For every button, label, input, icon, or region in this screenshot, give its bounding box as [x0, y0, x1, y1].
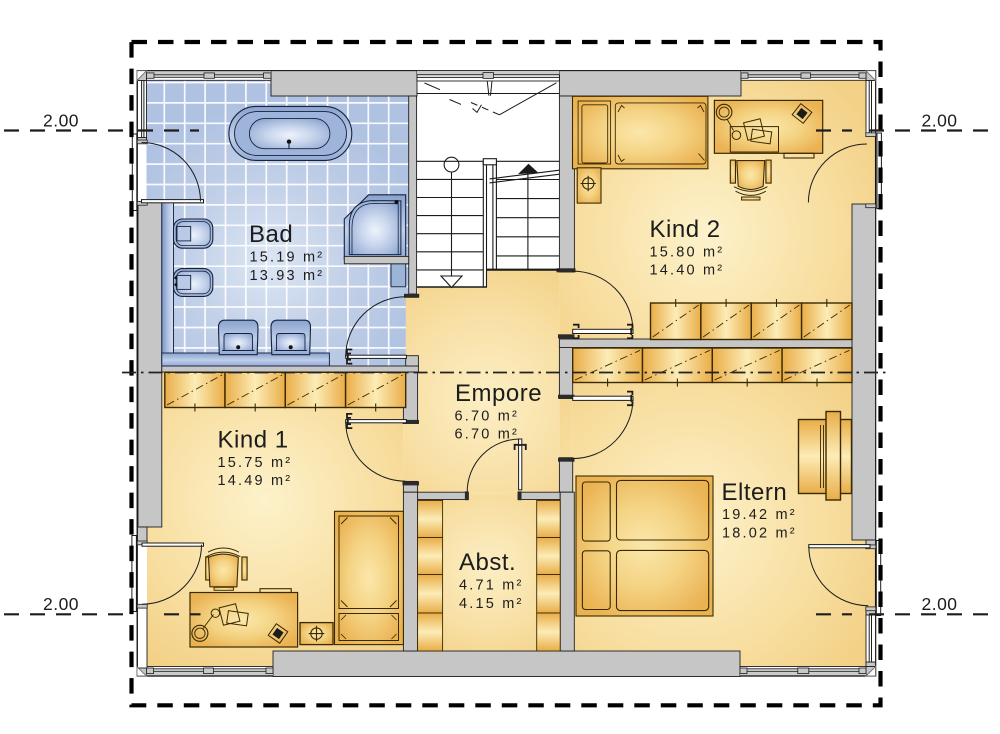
svg-text:13.93 m²: 13.93 m²	[250, 268, 325, 284]
svg-text:Empore: Empore	[455, 380, 542, 407]
svg-text:18.02 m²: 18.02 m²	[722, 526, 797, 542]
svg-text:15.19 m²: 15.19 m²	[250, 250, 325, 266]
svg-text:Eltern: Eltern	[722, 479, 788, 506]
svg-text:2.00: 2.00	[921, 110, 957, 130]
svg-text:Kind 1: Kind 1	[218, 427, 289, 454]
svg-text:Kind 2: Kind 2	[650, 216, 721, 243]
svg-text:2.00: 2.00	[43, 594, 79, 614]
svg-text:15.75 m²: 15.75 m²	[218, 455, 293, 471]
svg-text:6.70 m²: 6.70 m²	[455, 426, 520, 442]
svg-text:4.15 m²: 4.15 m²	[459, 596, 524, 612]
svg-text:15.80 m²: 15.80 m²	[650, 244, 725, 260]
svg-text:2.00: 2.00	[43, 110, 79, 130]
svg-text:6.70 m²: 6.70 m²	[455, 408, 520, 424]
svg-text:Bad: Bad	[249, 221, 293, 248]
svg-text:4.71 m²: 4.71 m²	[459, 578, 524, 594]
svg-text:2.00: 2.00	[921, 594, 957, 614]
svg-text:14.40 m²: 14.40 m²	[650, 262, 725, 278]
svg-text:19.42 m²: 19.42 m²	[722, 507, 797, 523]
svg-text:14.49 m²: 14.49 m²	[218, 473, 293, 489]
svg-text:Abst.: Abst.	[459, 549, 516, 576]
